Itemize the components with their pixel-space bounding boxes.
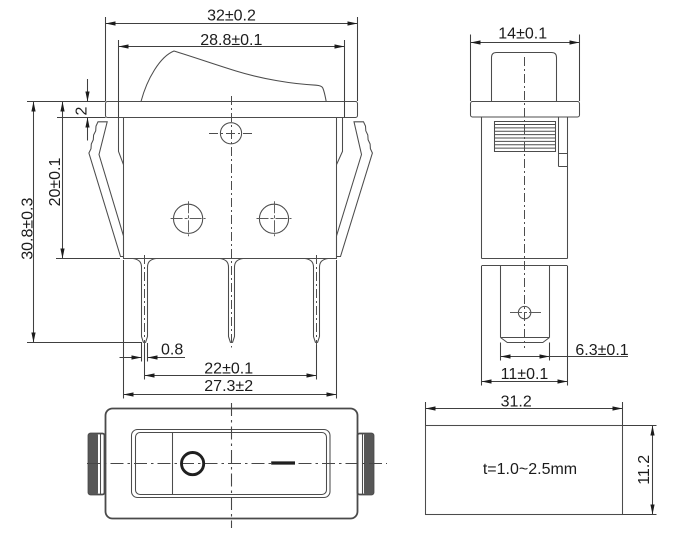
svg-text:30.8±0.3: 30.8±0.3 bbox=[19, 198, 36, 260]
svg-text:14±0.1: 14±0.1 bbox=[498, 26, 547, 43]
svg-text:6.3±0.1: 6.3±0.1 bbox=[575, 342, 628, 359]
svg-text:t=1.0~2.5mm: t=1.0~2.5mm bbox=[483, 461, 577, 478]
svg-text:32±0.2: 32±0.2 bbox=[207, 8, 256, 25]
svg-text:0.8: 0.8 bbox=[161, 342, 183, 359]
svg-text:11±0.1: 11±0.1 bbox=[501, 366, 549, 383]
svg-text:22±0.1: 22±0.1 bbox=[204, 360, 253, 377]
svg-text:28.8±0.1: 28.8±0.1 bbox=[200, 32, 262, 49]
svg-text:2: 2 bbox=[73, 106, 90, 115]
svg-text:31.2: 31.2 bbox=[501, 393, 532, 410]
svg-text:11.2: 11.2 bbox=[636, 455, 653, 485]
svg-text:27.3±2: 27.3±2 bbox=[204, 378, 253, 395]
svg-text:20±0.1: 20±0.1 bbox=[47, 157, 64, 206]
